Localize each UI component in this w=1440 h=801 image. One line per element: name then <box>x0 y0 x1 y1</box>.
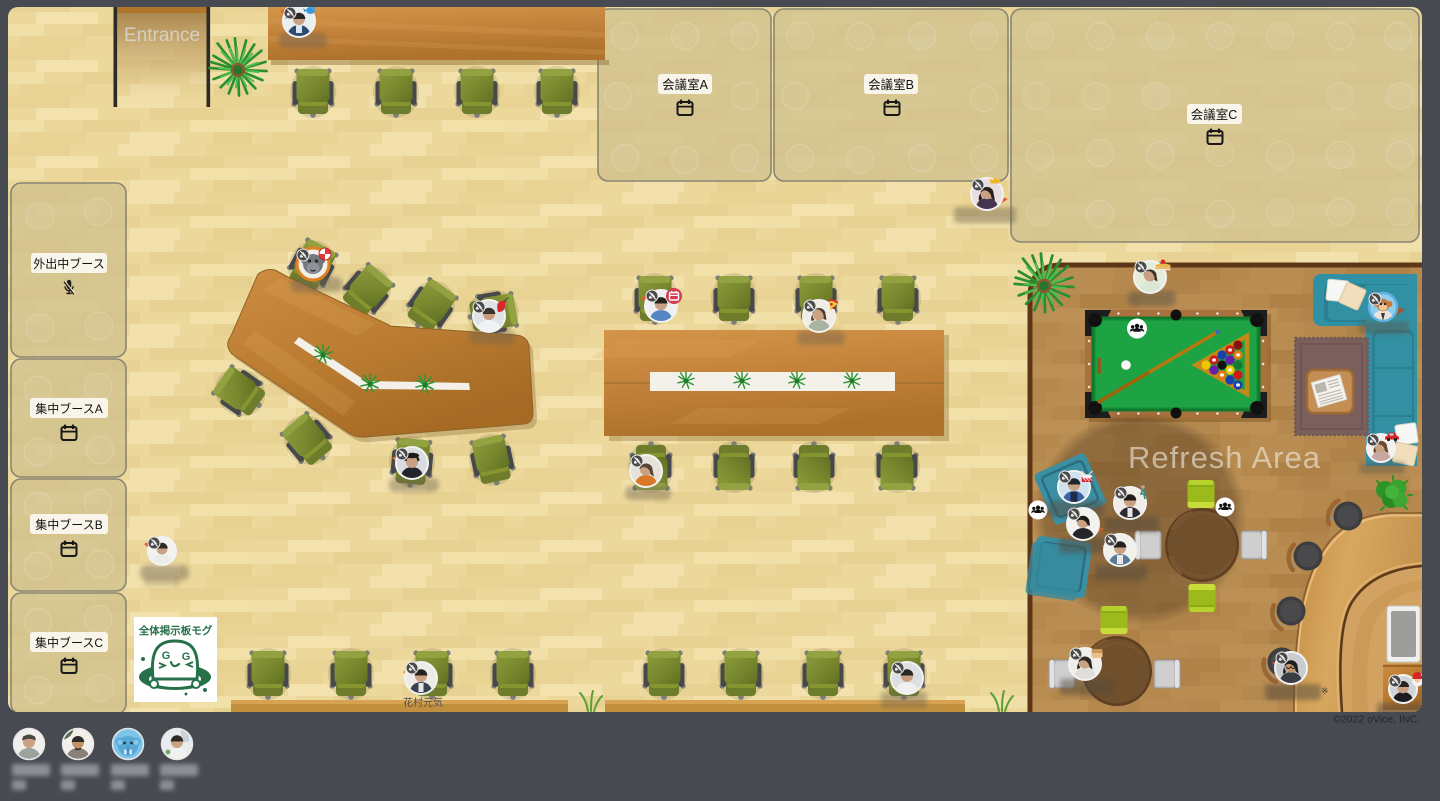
svg-text:会議室C: 会議室C <box>1191 107 1238 122</box>
svg-text:集中ブースA: 集中ブースA <box>35 401 102 416</box>
svg-text:G: G <box>162 650 171 662</box>
svg-text:花村元気: 花村元気 <box>403 696 443 709</box>
svg-text:集中ブースC: 集中ブースC <box>35 635 103 650</box>
svg-text:全体掲示板モグ: 全体掲示板モグ <box>138 624 213 637</box>
svg-text:※: ※ <box>1321 686 1329 696</box>
svg-text:集中ブースB: 集中ブースB <box>35 517 102 532</box>
svg-text:Entrance: Entrance <box>124 25 200 46</box>
svg-text:Refresh Area: Refresh Area <box>1128 440 1321 475</box>
svg-text:G: G <box>182 651 191 663</box>
svg-text:©2022 oVice, INC.: ©2022 oVice, INC. <box>1333 714 1420 726</box>
svg-text:外出中ブース: 外出中ブース <box>33 256 104 271</box>
svg-text:会議室A: 会議室A <box>662 77 709 92</box>
svg-text:会議室B: 会議室B <box>868 77 914 92</box>
